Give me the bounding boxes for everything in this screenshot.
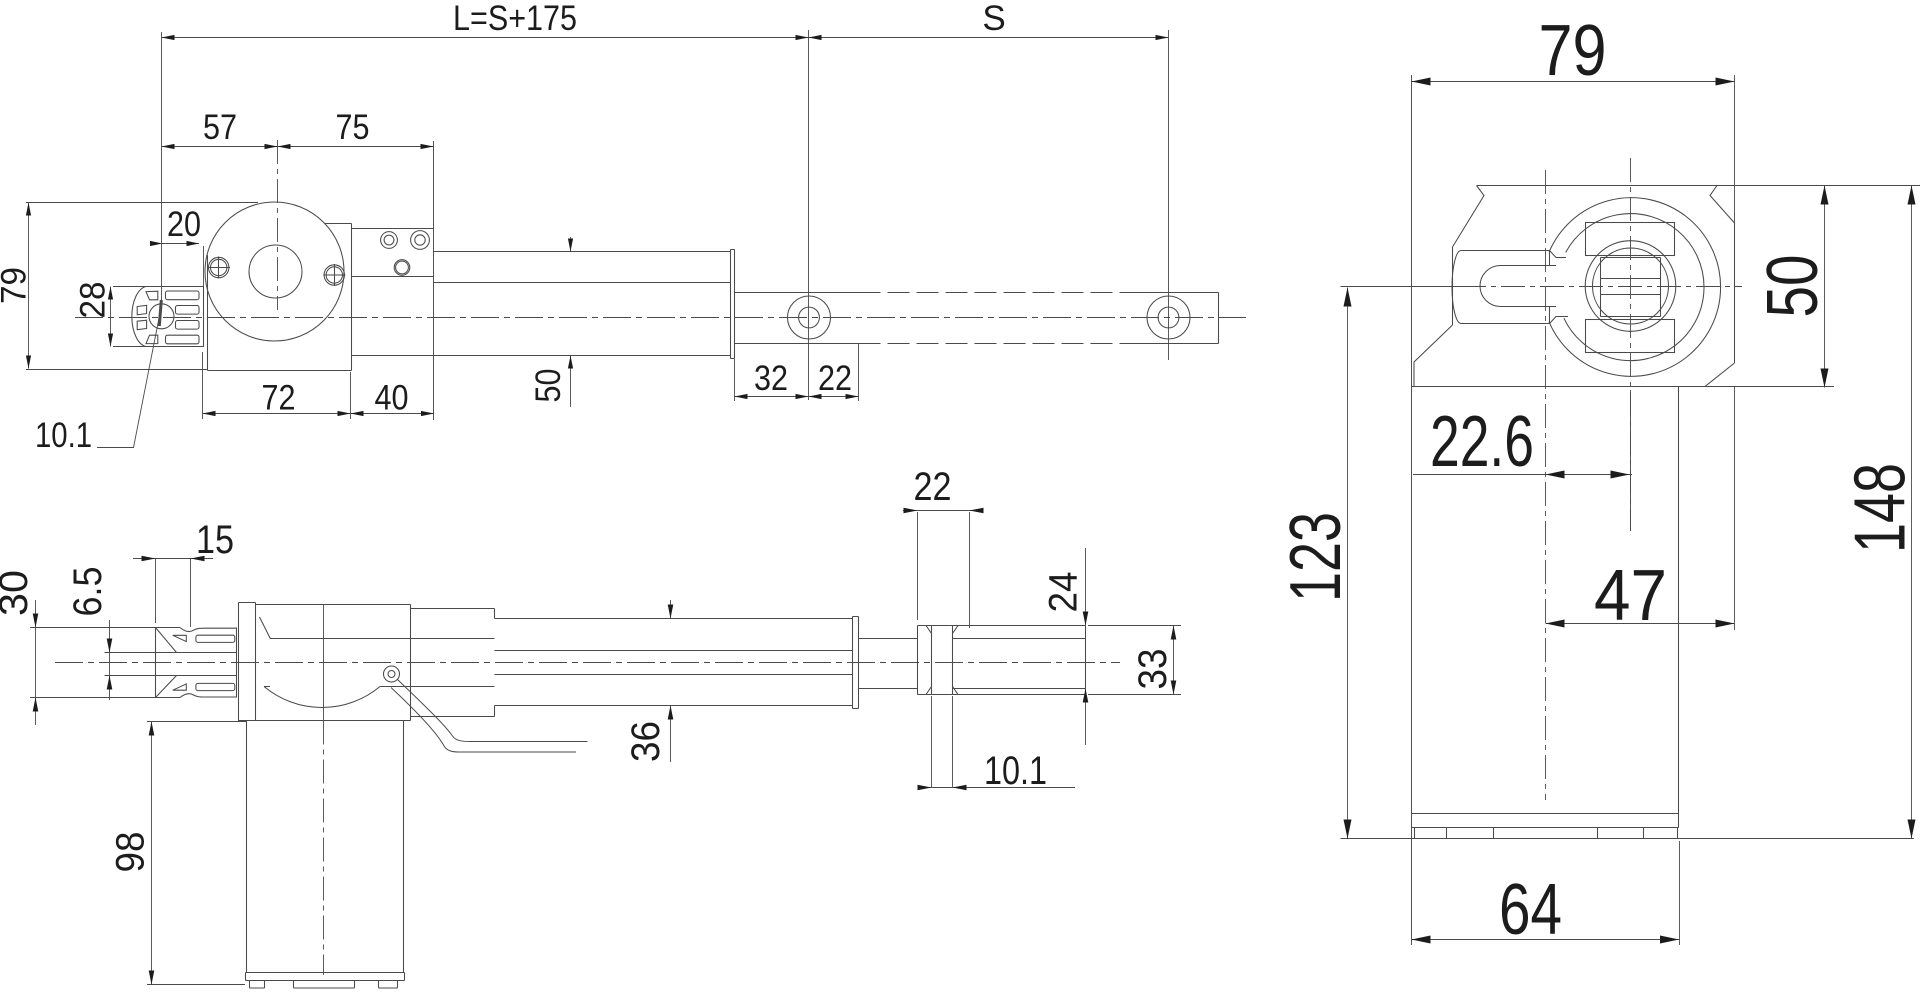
svg-text:72: 72 — [262, 379, 296, 418]
svg-text:15: 15 — [196, 518, 234, 562]
svg-text:L=S+175: L=S+175 — [453, 0, 577, 38]
svg-text:64: 64 — [1499, 870, 1562, 950]
svg-text:S: S — [982, 0, 1005, 38]
svg-text:32: 32 — [754, 359, 788, 398]
svg-text:50: 50 — [529, 369, 568, 403]
svg-text:47: 47 — [1594, 556, 1667, 636]
svg-text:148: 148 — [1841, 463, 1920, 553]
svg-text:75: 75 — [336, 108, 370, 147]
svg-text:36: 36 — [624, 721, 668, 762]
svg-text:10.1: 10.1 — [984, 749, 1047, 793]
svg-text:22: 22 — [914, 465, 952, 509]
svg-text:30: 30 — [0, 570, 36, 616]
svg-text:24: 24 — [1042, 572, 1086, 613]
svg-text:22: 22 — [818, 359, 852, 398]
svg-text:20: 20 — [167, 205, 201, 244]
svg-text:40: 40 — [375, 379, 409, 418]
svg-text:50: 50 — [1753, 255, 1833, 318]
svg-text:79: 79 — [1539, 11, 1607, 91]
svg-text:123: 123 — [1276, 512, 1356, 602]
svg-text:6.5: 6.5 — [66, 567, 110, 617]
svg-text:22.6: 22.6 — [1430, 402, 1534, 482]
svg-text:57: 57 — [203, 108, 237, 147]
svg-text:10.1: 10.1 — [35, 416, 92, 455]
svg-text:98: 98 — [109, 832, 153, 873]
svg-text:33: 33 — [1131, 649, 1175, 690]
svg-text:79: 79 — [0, 267, 34, 304]
svg-text:28: 28 — [74, 282, 113, 319]
